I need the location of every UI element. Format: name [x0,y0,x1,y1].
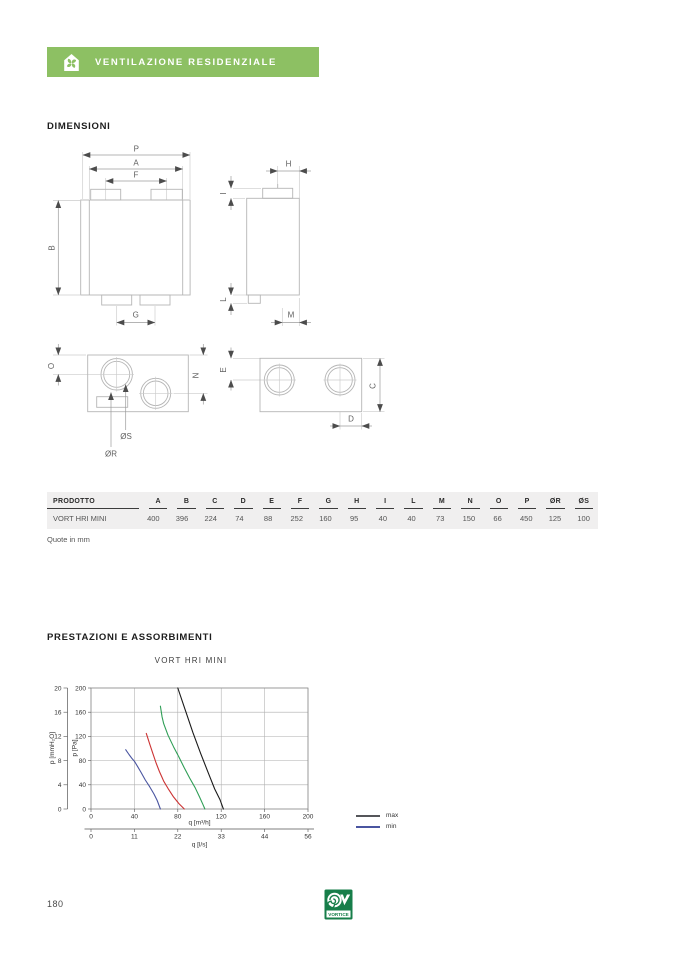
table-cell: 73 [426,509,455,527]
x-tick-label: 160 [259,814,270,821]
y-tick-label: 80 [79,758,87,765]
table-row: VORT HRI MINI400396224748825216095404073… [47,509,598,527]
table-cell: 450 [512,509,541,527]
dim-label-H: H [286,160,292,169]
legend-item-min: min [356,823,398,830]
table-header-p: P [518,493,536,509]
table-header-m: M [433,493,451,509]
chart-grid [91,688,308,809]
x-tick-label: 80 [174,814,182,821]
dim-label-L: L [219,297,228,302]
x2-tick-label: 56 [304,834,312,841]
x2-tick-label: 44 [261,834,269,841]
table-header-b: B [177,493,195,509]
table-cell: 150 [455,509,484,527]
legend-label: max [386,812,398,819]
dimensions-title: DIMENSIONI [47,121,110,132]
house-fan-icon [61,51,82,74]
x2-tick-label: 11 [131,834,138,841]
table-header-ør: ØR [546,493,564,509]
dim-label-E: E [219,367,228,372]
side-view: H I L M [219,160,311,327]
dim-label-M: M [288,311,295,320]
chart-title: VORT HRI MINI [45,656,337,665]
legend-line [356,815,380,817]
x-tick-label: 0 [89,814,93,821]
table-header-i: I [376,493,394,509]
dim-label-G: G [133,311,139,320]
table-cell: 125 [541,509,570,527]
table-header-l: L [404,493,422,509]
x2-tick-label: 0 [89,834,93,841]
y2-tick-label: 16 [54,710,62,717]
table-header-d: D [234,493,252,509]
table-cell: 40 [369,509,398,527]
table-header-n: N [461,493,479,509]
chart-axes: 0408012016020004812162004080120160200011… [54,685,314,840]
dim-label-A: A [133,159,139,168]
dim-label-I: I [219,192,228,194]
curve-min [126,750,161,809]
table-header-g: G [319,493,337,509]
table-cell: 74 [225,509,254,527]
table-cell: 224 [196,509,225,527]
dim-label-P: P [134,145,139,154]
curve-max [178,688,224,809]
dimension-drawings: P A F B G [45,140,405,465]
page-number: 180 [47,899,64,909]
top-view-left: O N ØS ØR [47,344,208,459]
table-header-f: F [291,493,309,509]
x-axis-title: q [m³/h] [188,820,210,827]
y2-tick-label: 4 [58,782,62,789]
dim-label-OR: ØR [105,450,117,459]
table-header-a: A [149,493,167,509]
curve-speed-2 [146,733,184,809]
table-header-øs: ØS [575,493,593,509]
top-view-right: E C D [219,348,385,430]
front-view: P A F B G [48,145,191,326]
dim-label-D: D [348,415,354,424]
table-header-row: PRODOTTOABCDEFGHILMNOPØRØS [47,493,598,509]
performance-chart: 0408012016020004812162004080120160200011… [45,675,385,855]
x2-tick-label: 22 [174,834,182,841]
y2-tick-label: 0 [58,806,62,813]
table-cell: 88 [254,509,283,527]
table-header-c: C [206,493,224,509]
table-note: Quote in mm [47,535,90,544]
x2-axis-title: q [l/s] [192,842,208,849]
table-header-e: E [263,493,281,509]
dim-label-O: O [47,363,56,369]
table-cell-product: VORT HRI MINI [47,509,139,527]
table-cell: 396 [168,509,197,527]
vortice-logo: VORTICE [324,889,353,920]
y-tick-label: 160 [75,710,86,717]
table-cell: 100 [569,509,598,527]
dimensions-table: PRODOTTOABCDEFGHILMNOPØRØSVORT HRI MINI4… [47,492,598,529]
table-cell: 252 [282,509,311,527]
legend-item-max: max [356,812,398,819]
table-cell: 66 [483,509,512,527]
x-tick-label: 120 [216,814,227,821]
y2-tick-label: 20 [54,685,62,692]
x2-tick-label: 33 [218,834,226,841]
y-tick-label: 0 [82,806,86,813]
legend-line [356,826,380,828]
x-tick-label: 40 [131,814,139,821]
y2-axis-title: p [mmH₂O] [49,732,56,764]
logo-text: VORTICE [328,912,348,917]
y2-tick-label: 8 [58,758,62,765]
catalog-page: VENTILAZIONE RESIDENZIALE DIMENSIONI [0,0,677,958]
performance-title: PRESTAZIONI E ASSORBIMENTI [47,632,212,643]
curve-speed-3 [160,706,205,809]
table-cell: 95 [340,509,369,527]
table-header-h: H [348,493,366,509]
y-axis-title: p [Pa] [72,739,79,756]
dim-label-N: N [192,372,201,378]
y-tick-label: 40 [79,782,87,789]
legend-label: min [386,823,396,830]
table-header-prodotto: PRODOTTO [47,493,139,509]
section-banner: VENTILAZIONE RESIDENZIALE [47,47,319,77]
table-cell: 160 [311,509,340,527]
chart-series [126,688,224,809]
dim-label-C: C [369,383,378,389]
table-cell: 40 [397,509,426,527]
table-cell: 400 [139,509,168,527]
table-header-o: O [490,493,508,509]
banner-label: VENTILAZIONE RESIDENZIALE [95,57,277,68]
y-tick-label: 200 [75,685,86,692]
dim-label-F: F [134,171,139,180]
x-tick-label: 200 [303,814,314,821]
plot-border [91,688,308,809]
chart-legend: maxmin [356,812,398,834]
dim-label-OS: ØS [120,432,132,441]
dim-label-B: B [48,245,57,250]
